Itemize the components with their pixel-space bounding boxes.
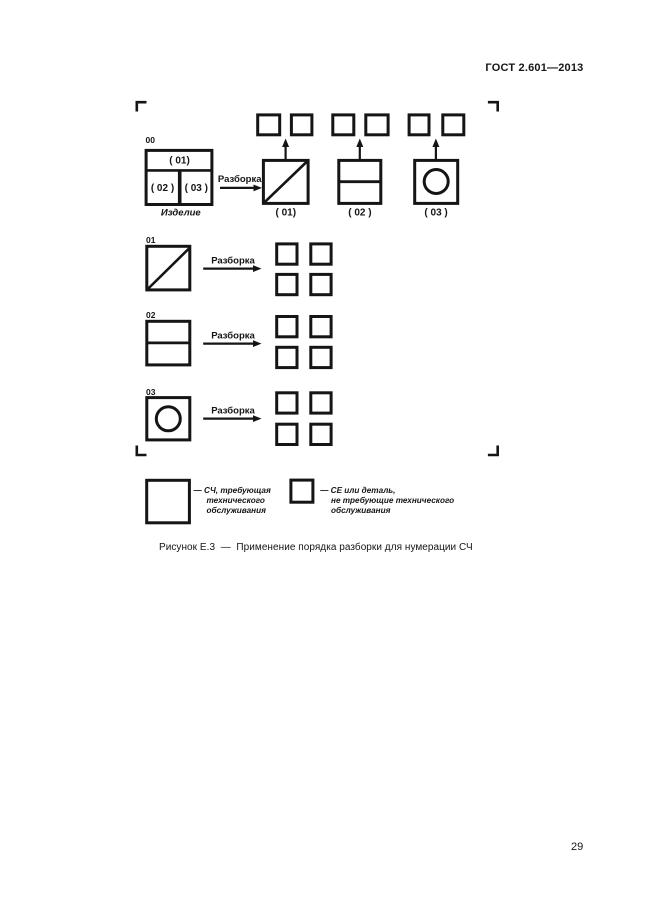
svg-text:( 01): ( 01): [276, 207, 297, 218]
svg-text:( 03 ): ( 03 ): [185, 183, 208, 194]
svg-text:обслуживания: обслуживания: [331, 505, 391, 515]
svg-text:( 03 ): ( 03 ): [424, 207, 447, 218]
svg-text:( 02 ): ( 02 ): [151, 183, 174, 194]
svg-text:( 02 ): ( 02 ): [348, 207, 371, 218]
svg-text:03: 03: [146, 387, 156, 397]
svg-text:— СЕ или деталь,: — СЕ или деталь,: [319, 486, 395, 495]
svg-text:не требующие технического: не требующие технического: [331, 495, 454, 505]
svg-text:обслуживания: обслуживания: [207, 505, 267, 515]
svg-text:Разборка: Разборка: [211, 255, 255, 266]
svg-text:Изделие: Изделие: [161, 208, 202, 219]
svg-text:01: 01: [146, 235, 156, 245]
svg-text:— СЧ, требующая: — СЧ, требующая: [193, 485, 271, 495]
svg-text:технического: технического: [207, 496, 265, 505]
svg-text:Разборка: Разборка: [211, 405, 255, 416]
svg-text:Разборка: Разборка: [218, 174, 262, 185]
svg-text:( 01): ( 01): [169, 155, 190, 166]
svg-text:Разборка: Разборка: [211, 330, 255, 341]
svg-text:02: 02: [146, 310, 156, 320]
svg-text:00: 00: [146, 135, 156, 145]
